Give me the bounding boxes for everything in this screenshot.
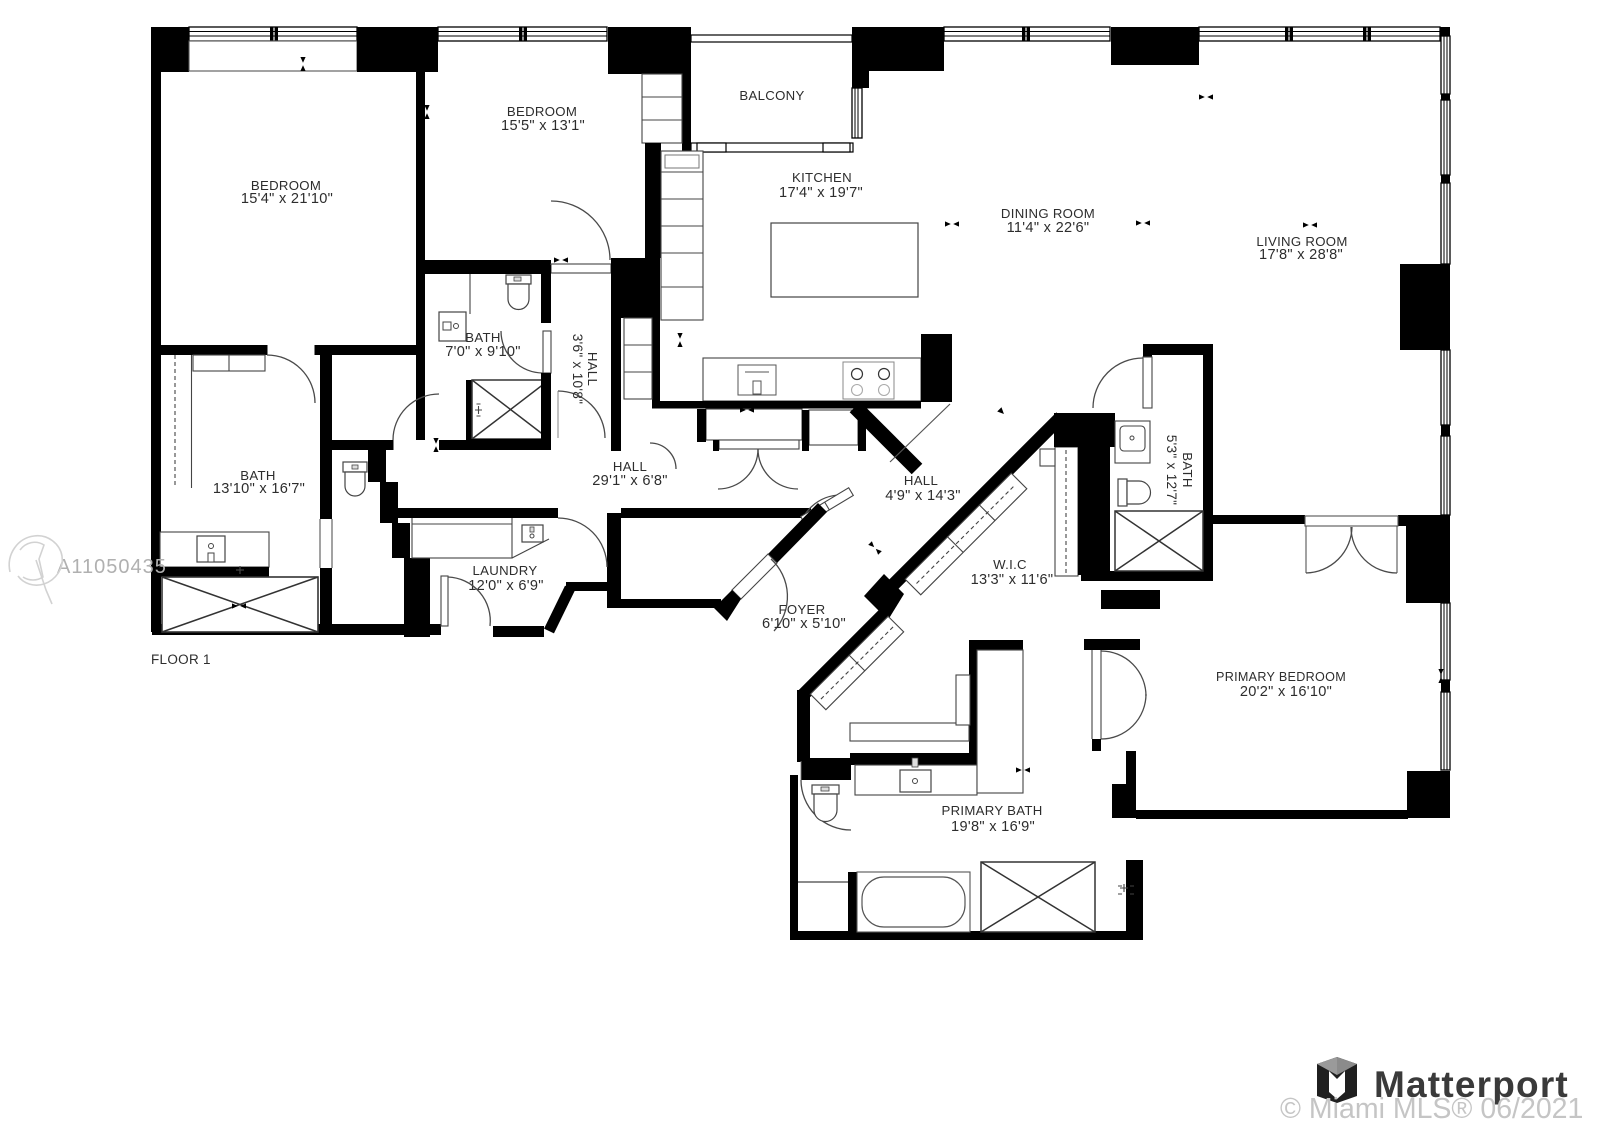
- svg-text:A11050435: A11050435: [57, 556, 167, 578]
- svg-text:19'8" x 16'9": 19'8" x 16'9": [951, 819, 1035, 835]
- svg-text:FOYER: FOYER: [779, 602, 826, 617]
- svg-text:HALL: HALL: [585, 352, 600, 386]
- svg-text:11'4" x 22'6": 11'4" x 22'6": [1007, 220, 1090, 236]
- svg-text:17'8" x 28'8": 17'8" x 28'8": [1259, 247, 1343, 263]
- svg-text:17'4" x 19'7": 17'4" x 19'7": [779, 185, 863, 201]
- svg-text:PRIMARY BATH: PRIMARY BATH: [941, 803, 1042, 818]
- svg-text:W.I.C: W.I.C: [993, 557, 1027, 572]
- svg-text:HALL: HALL: [613, 459, 647, 474]
- svg-text:4'9" x 14'3": 4'9" x 14'3": [885, 488, 961, 504]
- svg-text:BALCONY: BALCONY: [739, 88, 804, 103]
- svg-text:7'0" x 9'10": 7'0" x 9'10": [445, 344, 521, 360]
- svg-text:20'2" x 16'10": 20'2" x 16'10": [1240, 684, 1332, 700]
- svg-text:6'10" x 5'10": 6'10" x 5'10": [762, 616, 846, 632]
- svg-text:LAUNDRY: LAUNDRY: [473, 563, 538, 578]
- svg-text:BEDROOM: BEDROOM: [507, 104, 577, 119]
- svg-text:5'3" x 12'7": 5'3" x 12'7": [1164, 435, 1179, 506]
- svg-text:15'4" x 21'10": 15'4" x 21'10": [241, 191, 333, 207]
- svg-text:BATH: BATH: [465, 330, 500, 345]
- svg-text:HALL: HALL: [904, 473, 938, 488]
- svg-text:3'6" x 10'8": 3'6" x 10'8": [570, 334, 585, 405]
- svg-text:FLOOR 1: FLOOR 1: [151, 652, 211, 667]
- svg-text:BATH: BATH: [1180, 452, 1195, 487]
- svg-text:KITCHEN: KITCHEN: [792, 170, 852, 185]
- svg-text:PRIMARY BEDROOM: PRIMARY BEDROOM: [1216, 670, 1346, 684]
- svg-text:13'3" x 11'6": 13'3" x 11'6": [971, 572, 1054, 588]
- svg-text:15'5" x 13'1": 15'5" x 13'1": [501, 118, 585, 134]
- svg-text:29'1" x 6'8": 29'1" x 6'8": [592, 473, 668, 489]
- svg-text:13'10" x 16'7": 13'10" x 16'7": [213, 481, 305, 497]
- svg-text:© Miami MLS® 06/2021: © Miami MLS® 06/2021: [1280, 1093, 1583, 1125]
- svg-text:DINING ROOM: DINING ROOM: [1001, 206, 1095, 221]
